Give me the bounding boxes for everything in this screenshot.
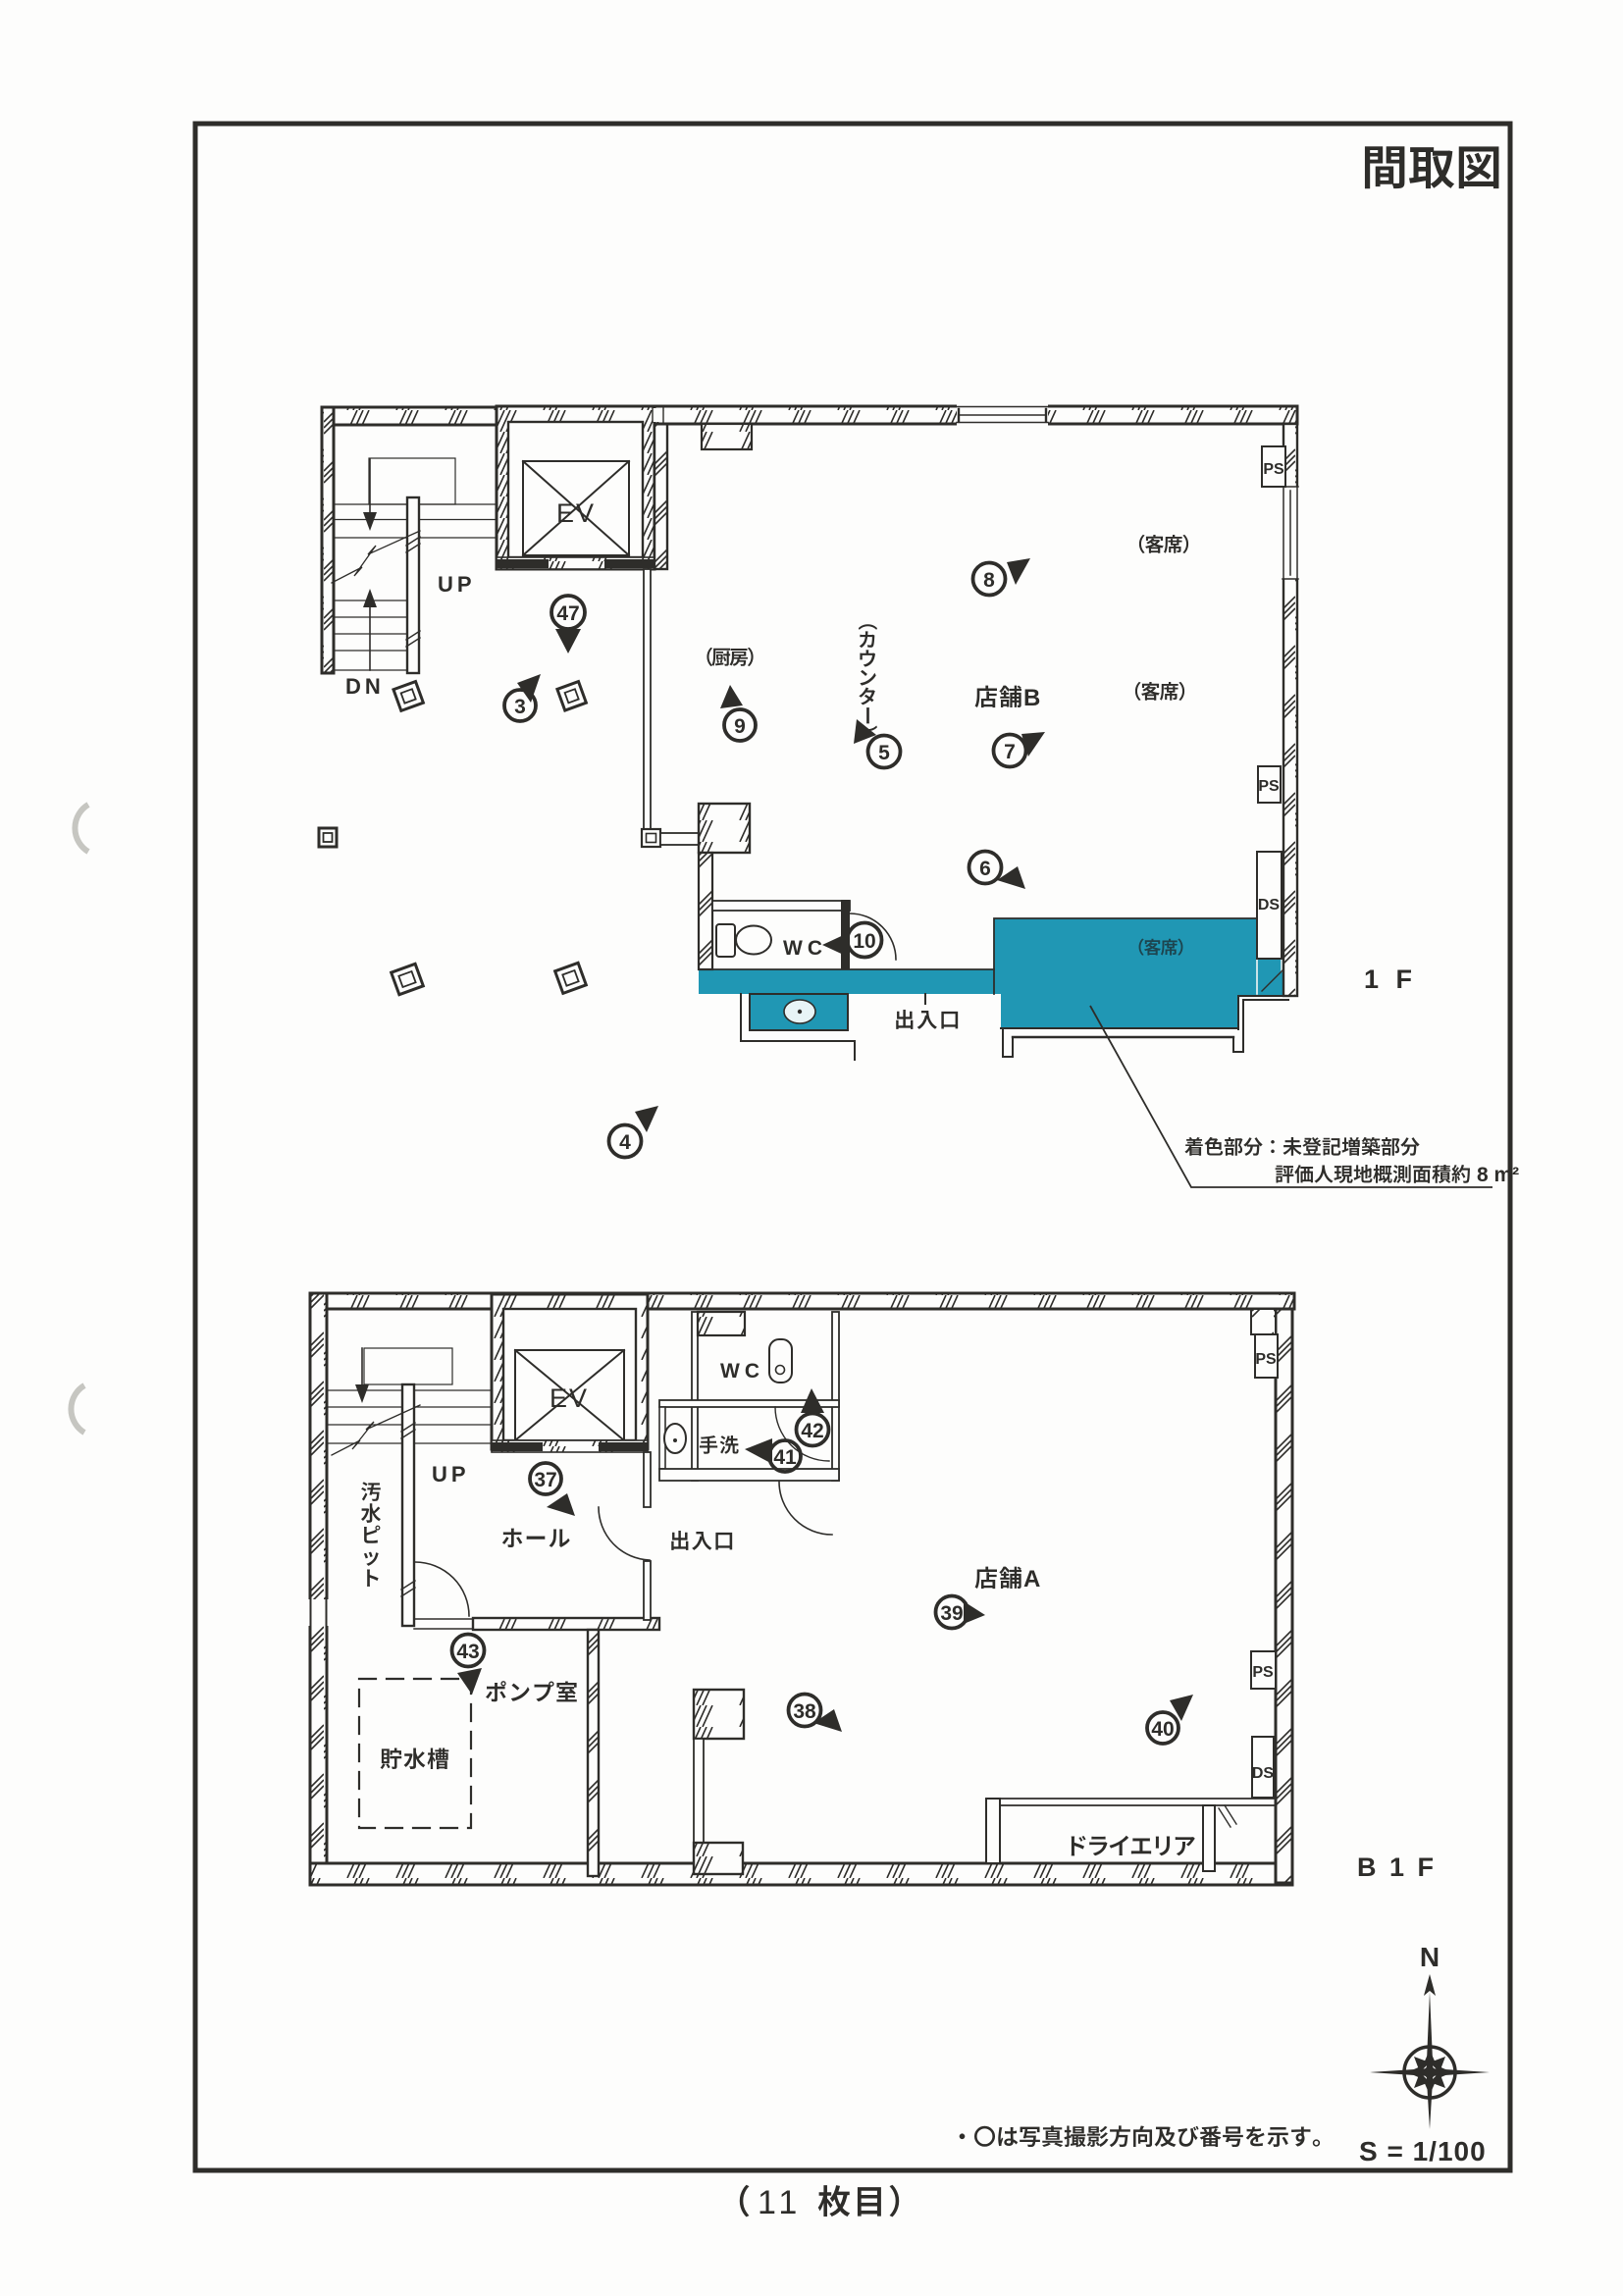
svg-text:42: 42 (801, 1420, 823, 1442)
svg-text:10: 10 (853, 930, 875, 953)
svg-text:PS: PS (1255, 1351, 1277, 1368)
svg-text:3: 3 (514, 696, 526, 718)
svg-text:43: 43 (456, 1641, 479, 1663)
svg-text:UP: UP (438, 572, 476, 597)
svg-text:PS: PS (1252, 1664, 1274, 1681)
svg-text:DS: DS (1258, 897, 1281, 913)
svg-text:1 F: 1 F (1364, 965, 1417, 994)
svg-text:37: 37 (534, 1469, 556, 1491)
svg-text:8: 8 (983, 569, 995, 592)
svg-text:38: 38 (793, 1700, 816, 1723)
svg-text:EV: EV (550, 1383, 589, 1413)
svg-text:DN: DN (345, 674, 385, 699)
svg-text:9: 9 (734, 715, 746, 738)
svg-text:7: 7 (1004, 741, 1016, 763)
svg-text:B 1 F: B 1 F (1357, 1852, 1437, 1882)
svg-text:B: B (1023, 685, 1040, 711)
svg-text:4: 4 (619, 1131, 631, 1154)
svg-text:UP: UP (432, 1462, 470, 1487)
svg-text:A: A (1023, 1566, 1040, 1592)
svg-text:39: 39 (940, 1602, 963, 1625)
svg-text:PS: PS (1263, 461, 1284, 478)
svg-text:11: 11 (758, 2184, 802, 2221)
svg-text:41: 41 (773, 1446, 797, 1469)
svg-text:8 m²: 8 m² (1477, 1164, 1519, 1186)
svg-text:WC: WC (720, 1360, 764, 1383)
svg-text:6: 6 (979, 858, 991, 880)
svg-text:EV: EV (556, 498, 596, 528)
svg-text:5: 5 (878, 742, 890, 764)
svg-text:40: 40 (1151, 1718, 1174, 1741)
svg-text:N: N (1420, 1942, 1440, 1972)
svg-text:S = 1/100: S = 1/100 (1359, 2136, 1487, 2166)
svg-text:PS: PS (1258, 778, 1280, 795)
svg-text:WC: WC (783, 937, 827, 960)
svg-text:47: 47 (556, 602, 579, 625)
svg-text:DS: DS (1252, 1765, 1275, 1782)
